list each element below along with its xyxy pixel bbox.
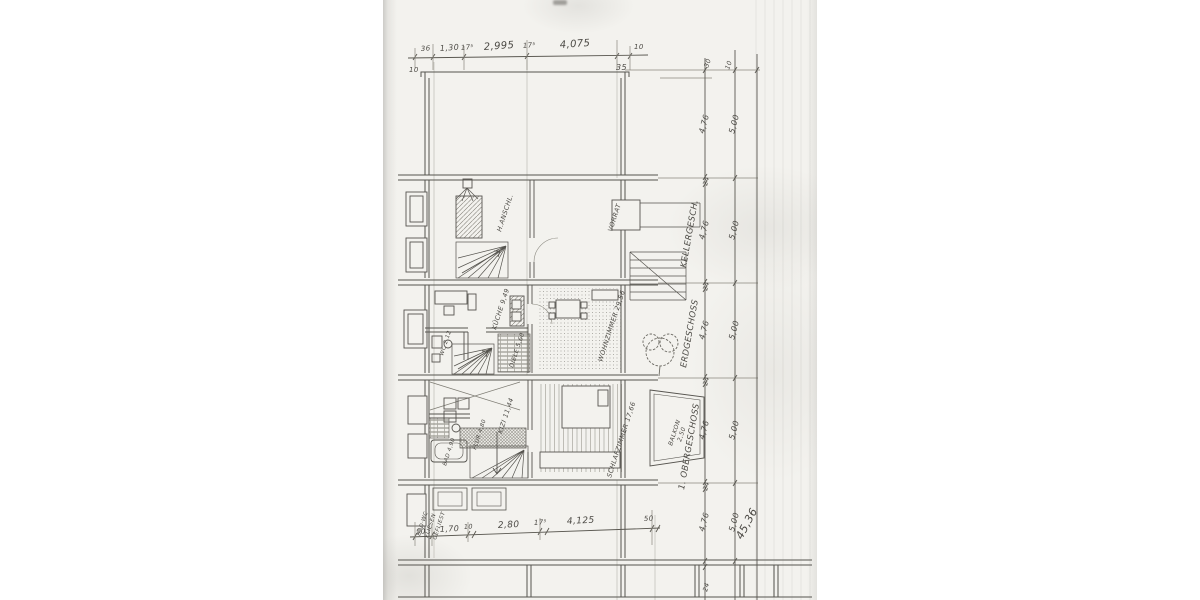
room-label-wc: WC 2,12 — [439, 330, 453, 357]
dim-top-2995: 2,995 — [483, 40, 514, 53]
window-upper-2 — [408, 434, 427, 458]
bottom-storey-windows — [433, 488, 506, 510]
dim-top-10-right: 10 — [634, 43, 644, 51]
window-basement-1 — [406, 192, 427, 226]
dim-height-1: 4,76 — [697, 113, 711, 134]
dim-top-36: 36 — [421, 44, 431, 53]
dim-width-2: 5,00 — [727, 219, 741, 240]
basement-stairs — [456, 242, 508, 278]
dim-top-10-left: 10 — [409, 66, 419, 74]
exterior-stairs — [630, 252, 686, 300]
dim-height-3: 4,76 — [697, 319, 711, 340]
ground-floor-interior — [425, 285, 622, 374]
dim-slab-2: 24 — [701, 281, 711, 292]
dim-bot-280: 2,80 — [498, 520, 520, 531]
dim-height-2: 4,76 — [697, 219, 711, 240]
floor-label-upper: 1. OBERGESCHOSS — [677, 402, 702, 490]
dim-width-4: 5,00 — [727, 419, 741, 440]
upper-floor-interior — [429, 380, 622, 478]
dim-bot-4125: 4,125 — [567, 516, 595, 527]
dim-width-3: 5,00 — [727, 319, 741, 340]
dim-top-175a: 17⁵ — [461, 43, 474, 52]
dim-height-5: 4,76 — [697, 511, 711, 532]
dim-slab-3: 24 — [701, 376, 711, 387]
dim-height-4: 4,76 — [697, 419, 711, 440]
dim-width-1: 5,00 — [727, 113, 741, 134]
bush-symbol — [643, 334, 678, 376]
window-basement-2 — [406, 238, 427, 272]
dim-top-175b: 17⁵ — [523, 41, 536, 50]
dim-slab-4: 24 — [701, 481, 711, 492]
window-upper-1 — [408, 396, 427, 424]
left-windows — [404, 192, 427, 526]
dim-top-4075: 4,075 — [559, 38, 590, 51]
window-ground — [404, 310, 427, 348]
ground-stairs — [452, 344, 494, 374]
dim-top-35: 35 — [616, 63, 627, 72]
floor-plan-drawing: 10 36 1,30 17⁵ 2,995 17⁵ 4,075 35 10 — [0, 0, 1200, 600]
dim-slab-1: 24 — [701, 176, 711, 187]
dim-offset-30: 30 — [702, 57, 713, 68]
right-dimension-labels: 30 10 4,76 4,76 4,76 4,76 4,76 24 24 24 … — [697, 57, 760, 592]
room-label-kitchen: KÜCHE 9,49 — [489, 287, 511, 331]
dim-top-130: 1,30 — [440, 43, 460, 53]
dim-offset-10: 10 — [723, 59, 734, 70]
dim-bot-50-right: 50 — [644, 514, 654, 523]
dim-bot-175: 17⁵ — [534, 518, 547, 527]
room-label-service: H.ANSCHL. — [495, 193, 515, 233]
floor-labels: KELLERGESCH. ERDGESCHOSS 1. OBERGESCHOSS — [677, 199, 702, 491]
dim-slab-5: 24 — [701, 582, 711, 593]
dim-bot-10: 10 — [464, 523, 473, 531]
